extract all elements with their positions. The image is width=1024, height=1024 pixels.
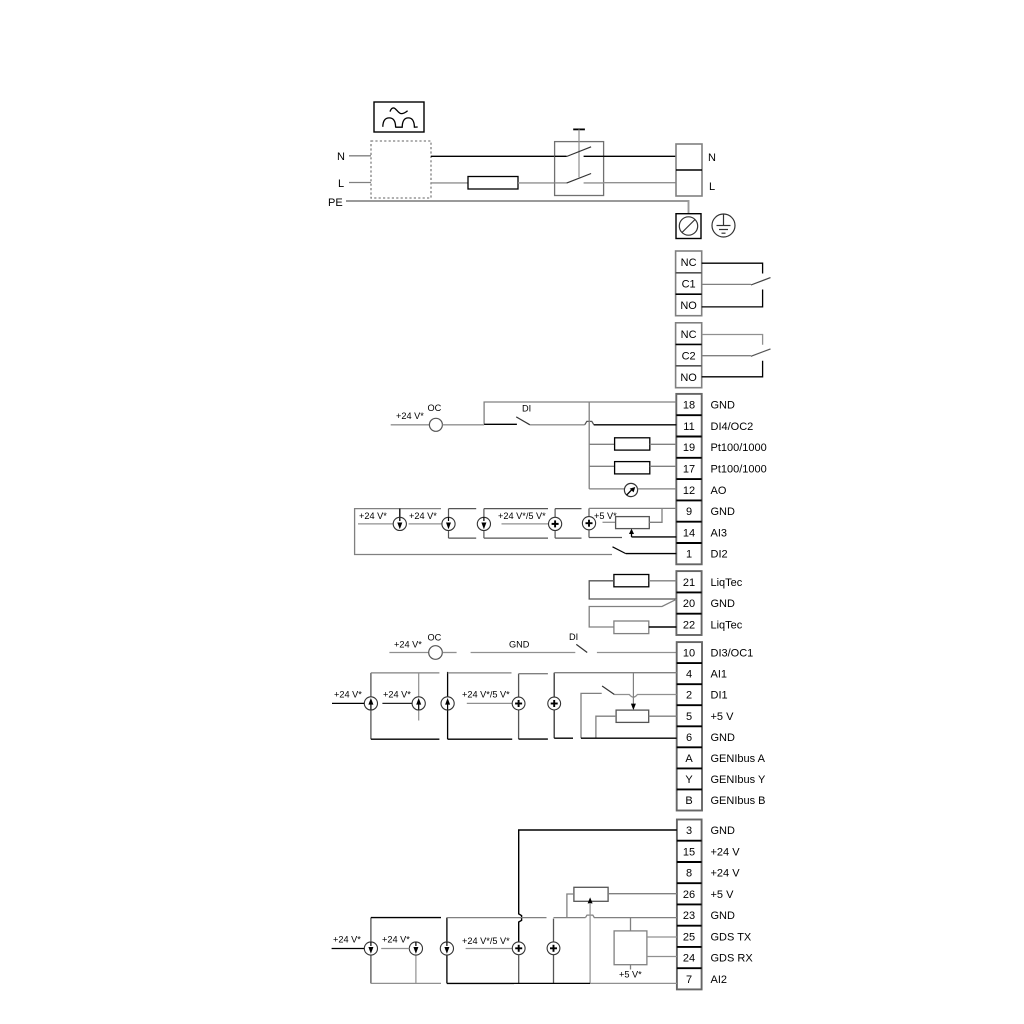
svg-text:24: 24 [683,953,695,965]
svg-text:GENIbus Y: GENIbus Y [711,774,766,786]
svg-text:+24 V*: +24 V* [333,935,361,945]
svg-text:11: 11 [683,421,694,433]
svg-text:AI3: AI3 [711,527,728,539]
svg-text:DI1: DI1 [711,690,728,702]
svg-text:+5 V: +5 V [711,711,735,723]
svg-text:+24 V*: +24 V* [334,690,362,700]
svg-text:4: 4 [686,669,692,681]
svg-text:+24 V*: +24 V* [394,640,422,650]
svg-text:GDS TX: GDS TX [711,931,752,943]
svg-text:18: 18 [683,400,695,412]
svg-text:OC: OC [428,633,442,643]
svg-text:AI2: AI2 [711,974,728,986]
svg-text:6: 6 [686,732,692,744]
svg-text:GND: GND [711,910,736,922]
svg-text:L: L [338,178,344,190]
svg-text:GND: GND [711,732,736,744]
svg-text:GDS RX: GDS RX [711,953,754,965]
svg-text:3: 3 [686,825,692,837]
svg-text:8: 8 [686,868,692,880]
svg-text:10: 10 [683,648,695,660]
svg-text:15: 15 [683,846,695,858]
svg-text:23: 23 [683,910,695,922]
svg-text:+24 V*/5 V*: +24 V*/5 V* [498,511,546,521]
svg-text:C2: C2 [682,350,696,362]
svg-text:L: L [709,181,715,193]
svg-text:GND: GND [711,506,736,518]
svg-text:DI2: DI2 [711,549,728,561]
svg-text:20: 20 [683,598,695,610]
svg-text:5: 5 [686,711,692,723]
svg-text:GND: GND [509,640,530,650]
svg-text:AI1: AI1 [711,669,728,681]
svg-text:+24 V*: +24 V* [409,511,437,521]
svg-text:B: B [685,795,692,807]
svg-text:Pt100/1000: Pt100/1000 [711,442,767,454]
svg-text:7: 7 [686,974,692,986]
svg-text:25: 25 [683,931,695,943]
svg-text:GND: GND [711,598,736,610]
svg-text:9: 9 [686,506,692,518]
svg-text:GND: GND [711,400,736,412]
svg-text:GND: GND [711,825,736,837]
svg-text:LiqTec: LiqTec [711,577,743,589]
svg-text:+24 V: +24 V [711,846,741,858]
svg-text:PE: PE [328,197,343,209]
svg-text:A: A [685,753,693,765]
svg-text:26: 26 [683,889,695,901]
svg-text:+24 V*/5 V*: +24 V*/5 V* [462,936,510,946]
svg-text:17: 17 [683,464,695,476]
svg-text:2: 2 [686,690,692,702]
svg-text:DI: DI [522,404,531,414]
svg-text:+24 V*/5 V*: +24 V*/5 V* [462,690,510,700]
svg-text:NC: NC [681,257,697,269]
svg-text:LiqTec: LiqTec [711,619,743,631]
svg-text:+24 V: +24 V [711,868,741,880]
svg-text:14: 14 [683,527,695,539]
svg-text:NO: NO [680,372,697,384]
svg-text:+5 V*: +5 V* [619,970,642,980]
svg-text:12: 12 [683,485,695,497]
svg-text:C1: C1 [682,279,696,291]
svg-text:DI3/OC1: DI3/OC1 [711,648,754,660]
svg-text:Pt100/1000: Pt100/1000 [711,464,767,476]
svg-text:+24 V*: +24 V* [396,411,424,421]
svg-text:GENIbus A: GENIbus A [711,753,766,765]
svg-text:OC: OC [428,403,442,413]
svg-text:+5 V*: +5 V* [594,511,617,521]
svg-text:1: 1 [686,549,692,561]
svg-text:DI4/OC2: DI4/OC2 [711,421,754,433]
svg-text:+24 V*: +24 V* [383,690,411,700]
svg-text:+24 V*: +24 V* [382,935,410,945]
svg-text:N: N [708,152,716,164]
svg-text:+5 V: +5 V [711,889,735,901]
svg-text:Y: Y [685,774,693,786]
svg-text:22: 22 [683,619,695,631]
svg-text:GENIbus B: GENIbus B [711,795,766,807]
svg-text:NC: NC [681,329,697,341]
svg-text:19: 19 [683,442,695,454]
svg-text:AO: AO [711,485,727,497]
svg-text:DI: DI [569,632,578,642]
svg-text:21: 21 [683,577,695,589]
svg-text:NO: NO [680,300,697,312]
svg-text:N: N [337,151,345,163]
svg-text:+24 V*: +24 V* [359,511,387,521]
